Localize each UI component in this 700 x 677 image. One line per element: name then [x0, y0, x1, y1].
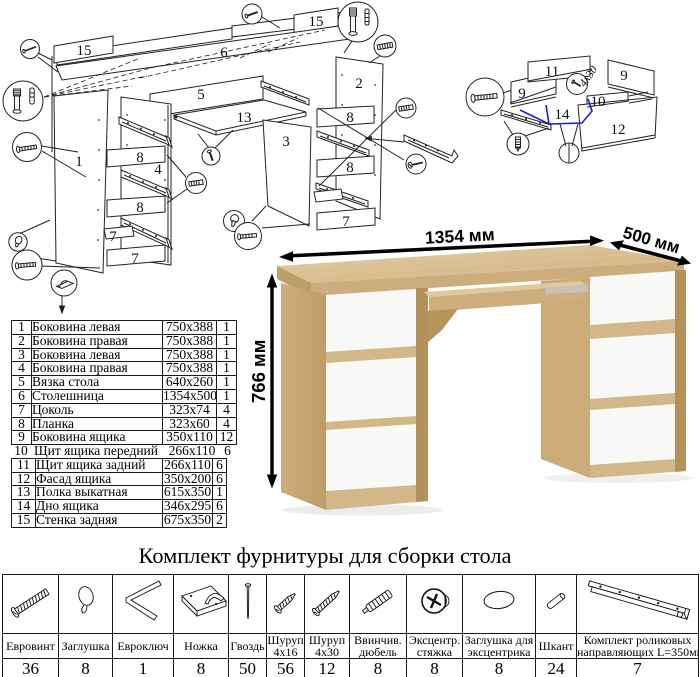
svg-text:3: 3 — [282, 134, 290, 150]
svg-text:8: 8 — [346, 110, 354, 126]
svg-text:4: 4 — [154, 162, 162, 178]
svg-text:11: 11 — [545, 64, 559, 80]
svg-text:8: 8 — [346, 160, 354, 176]
svg-text:10: 10 — [591, 94, 606, 110]
svg-text:15: 15 — [77, 43, 92, 59]
svg-text:8: 8 — [136, 200, 144, 216]
svg-text:7: 7 — [109, 229, 117, 245]
svg-text:15: 15 — [309, 14, 324, 30]
svg-text:12: 12 — [611, 122, 626, 138]
svg-text:14: 14 — [555, 107, 571, 123]
svg-text:6: 6 — [220, 45, 228, 61]
svg-text:5: 5 — [197, 87, 205, 103]
svg-text:13: 13 — [237, 110, 252, 126]
svg-text:7: 7 — [131, 251, 139, 267]
svg-text:9: 9 — [518, 86, 526, 102]
svg-text:8: 8 — [136, 150, 144, 166]
svg-text:7: 7 — [342, 214, 350, 230]
svg-text:2: 2 — [355, 76, 363, 92]
svg-text:1: 1 — [75, 154, 83, 170]
svg-text:9: 9 — [620, 68, 628, 84]
